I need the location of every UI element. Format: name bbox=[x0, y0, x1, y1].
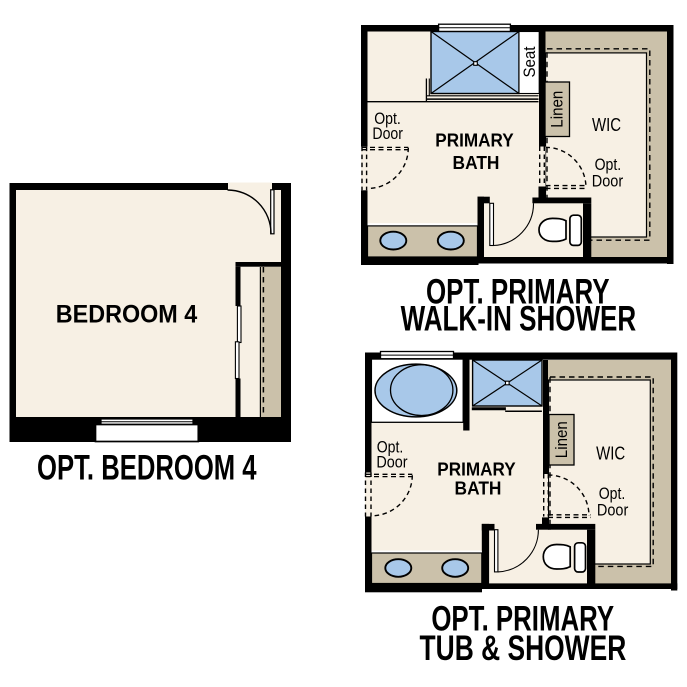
svg-text:OPT. BEDROOM 4: OPT. BEDROOM 4 bbox=[37, 449, 257, 488]
svg-text:Seat: Seat bbox=[520, 46, 539, 77]
svg-text:PRIMARY: PRIMARY bbox=[435, 131, 513, 151]
svg-text:Linen: Linen bbox=[552, 421, 571, 458]
svg-text:Door: Door bbox=[597, 501, 629, 520]
svg-text:BATH: BATH bbox=[455, 479, 502, 499]
svg-text:Door: Door bbox=[592, 172, 624, 191]
svg-text:BEDROOM 4: BEDROOM 4 bbox=[56, 301, 198, 329]
svg-text:WIC: WIC bbox=[592, 115, 621, 135]
svg-text:WALK-IN SHOWER: WALK-IN SHOWER bbox=[401, 300, 637, 339]
svg-text:Door: Door bbox=[372, 124, 403, 143]
svg-text:TUB & SHOWER: TUB & SHOWER bbox=[420, 629, 627, 668]
svg-text:WIC: WIC bbox=[596, 444, 625, 464]
svg-text:PRIMARY: PRIMARY bbox=[437, 459, 515, 479]
svg-text:BATH: BATH bbox=[453, 153, 500, 173]
svg-text:Linen: Linen bbox=[548, 91, 567, 128]
svg-text:Door: Door bbox=[376, 452, 407, 471]
